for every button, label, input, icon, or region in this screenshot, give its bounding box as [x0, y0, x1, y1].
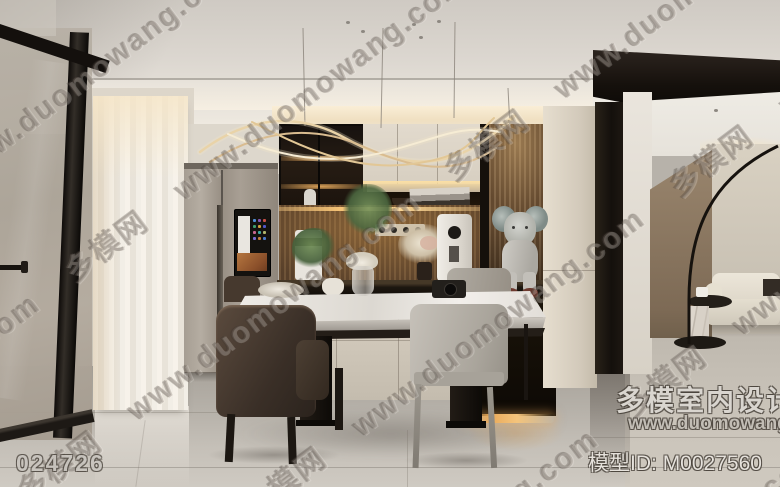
model-id-value: M0027560 [663, 452, 762, 475]
interior-render-photo: 多模网 www.duomowang.com 多模网 www.duomowang.… [0, 0, 780, 487]
image-number-overlay: 024726 [16, 450, 105, 477]
brand-url-overlay: www.duomowang.com [628, 413, 780, 435]
model-id-overlay: 模型ID: M0027560 [588, 447, 762, 477]
model-id-label: 模型ID: [588, 452, 657, 475]
